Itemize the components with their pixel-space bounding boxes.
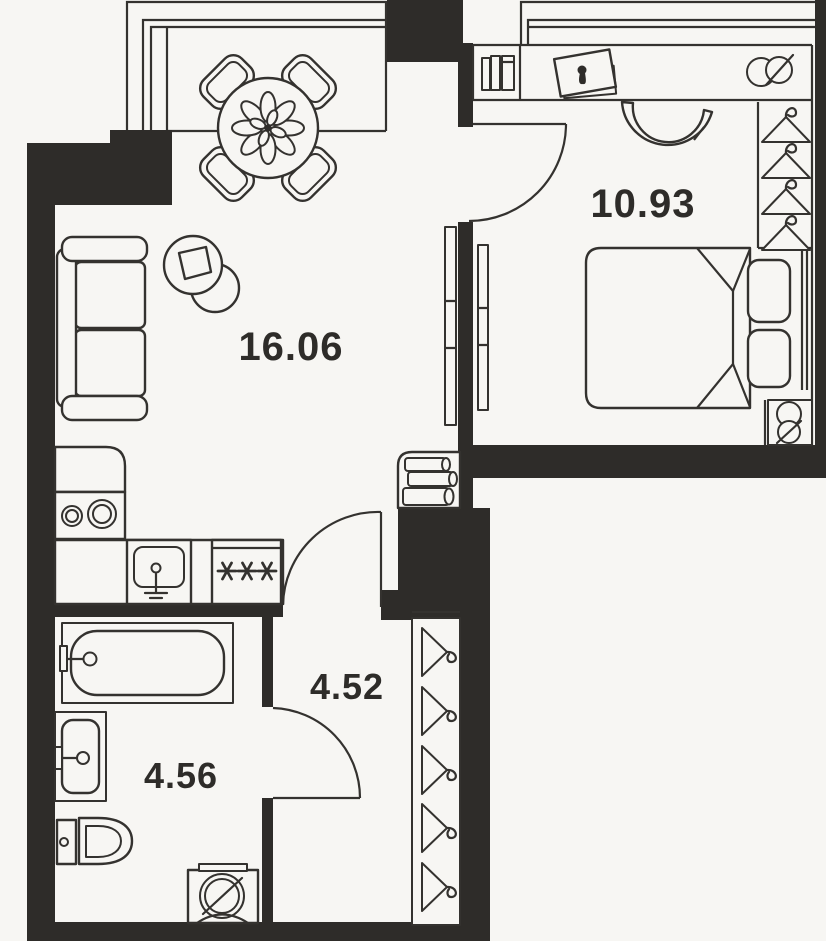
kitchen-sink (127, 540, 191, 604)
floor-plan-canvas: 16.06 10.93 4.52 4.56 (0, 0, 826, 941)
corner-bookshelf (398, 452, 460, 508)
swing-door-bedroom (469, 124, 566, 221)
tv-unit-bedroom (478, 245, 488, 410)
pillow (748, 260, 790, 322)
bathroom-area-label: 4.56 (144, 755, 218, 796)
bathtub (60, 623, 233, 703)
hallway-wardrobe (412, 612, 460, 925)
side-table (164, 236, 239, 312)
living-room-area-label: 16.06 (238, 325, 343, 369)
double-bed (586, 248, 790, 408)
picture-frame (554, 49, 616, 98)
swing-door-bathroom (273, 708, 360, 798)
washing-machine (188, 864, 258, 923)
bedroom-area-label: 10.93 (590, 182, 695, 226)
floor-plan: 16.06 10.93 4.52 4.56 (0, 0, 826, 941)
sofa (57, 237, 147, 420)
stove-two-burners (55, 492, 125, 539)
dining-set (195, 50, 341, 206)
balcony-right (521, 2, 815, 45)
double-mirror (747, 55, 793, 86)
flower-centerpiece (232, 92, 304, 164)
standing-books (482, 56, 514, 90)
hanger-icon (762, 144, 810, 178)
swing-door-hallway (283, 512, 381, 607)
desk-chair (622, 102, 712, 145)
window-double-line (802, 250, 807, 390)
bedside-stool (765, 400, 812, 445)
desk-shelf-items (482, 49, 793, 98)
tv-unit-living (445, 227, 456, 425)
hob-three-asterisks (212, 540, 281, 604)
toilet (57, 818, 132, 864)
washbasin (55, 712, 106, 801)
bedroom-wardrobe (758, 102, 812, 250)
books-horizontal (403, 458, 457, 505)
hanger-icon (762, 180, 810, 214)
kitchen-counter (55, 447, 283, 604)
hanger-icon (762, 108, 810, 142)
hallway-area-label: 4.52 (310, 666, 384, 707)
pillow (748, 330, 790, 387)
hanger-icon (762, 216, 810, 250)
